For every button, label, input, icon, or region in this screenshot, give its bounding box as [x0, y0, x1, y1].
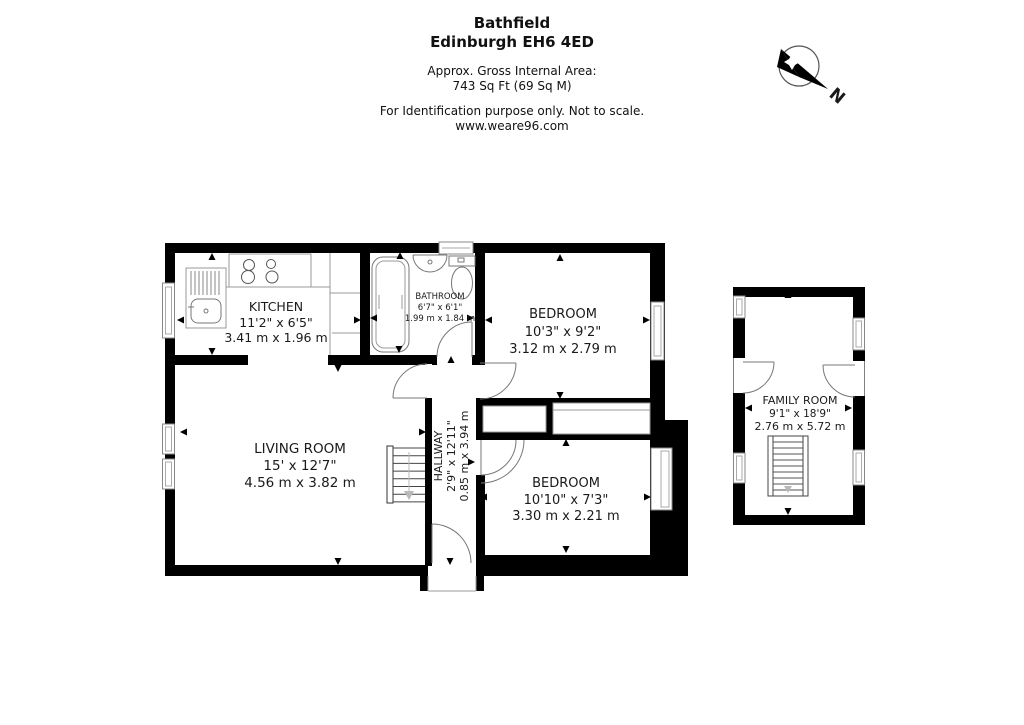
svg-text:2.76 m x 5.72 m: 2.76 m x 5.72 m: [755, 420, 846, 433]
svg-text:2'9" x 12'11": 2'9" x 12'11": [445, 420, 458, 492]
svg-text:3.12 m x 2.79 m: 3.12 m x 2.79 m: [509, 342, 616, 357]
bedroom-bottom-window: [651, 448, 672, 510]
built-in-storage: [483, 403, 650, 434]
svg-text:KITCHEN: KITCHEN: [249, 299, 303, 314]
svg-text:1.99 m x 1.84 m: 1.99 m x 1.84 m: [405, 314, 475, 324]
svg-text:BATHROOM: BATHROOM: [415, 292, 464, 302]
svg-text:LIVING ROOM: LIVING ROOM: [254, 441, 346, 457]
svg-text:6'7" x 6'1": 6'7" x 6'1": [418, 303, 463, 313]
compass-north-label: N: [825, 84, 849, 108]
svg-text:BEDROOM: BEDROOM: [529, 307, 597, 322]
svg-text:FAMILY ROOM: FAMILY ROOM: [763, 394, 838, 407]
svg-text:3.41 m x 1.96 m: 3.41 m x 1.96 m: [224, 330, 327, 345]
family-room-stairs: [768, 436, 808, 496]
bedroom-top-window: [651, 302, 664, 360]
svg-text:10'10" x 7'3": 10'10" x 7'3": [524, 493, 609, 508]
kitchen-window: [163, 283, 175, 338]
bathroom-window: [439, 242, 473, 254]
floorplan-drawing: N: [0, 0, 1024, 725]
svg-text:0.85 m x 3.94 m: 0.85 m x 3.94 m: [458, 411, 471, 502]
svg-text:10'3" x 9'2": 10'3" x 9'2": [525, 325, 601, 340]
floorplan-page: Bathfield Edinburgh EH6 4ED Approx. Gros…: [0, 0, 1024, 725]
svg-text:HALLWAY: HALLWAY: [432, 430, 445, 481]
svg-text:15' x 12'7": 15' x 12'7": [263, 458, 336, 474]
svg-text:BEDROOM: BEDROOM: [532, 476, 600, 491]
living-room-window-upper: [163, 424, 175, 454]
compass-icon: N: [777, 46, 849, 109]
living-room-window-lower: [163, 459, 175, 489]
svg-text:3.30 m x 2.21 m: 3.30 m x 2.21 m: [512, 509, 619, 524]
svg-text:9'1" x 18'9": 9'1" x 18'9": [769, 408, 831, 420]
sink-unit-icon: [186, 268, 226, 328]
svg-text:11'2" x 6'5": 11'2" x 6'5": [239, 315, 312, 330]
hob-icon: [229, 254, 311, 287]
bathtub-icon: [372, 257, 409, 352]
svg-text:4.56 m x 3.82 m: 4.56 m x 3.82 m: [244, 475, 356, 491]
